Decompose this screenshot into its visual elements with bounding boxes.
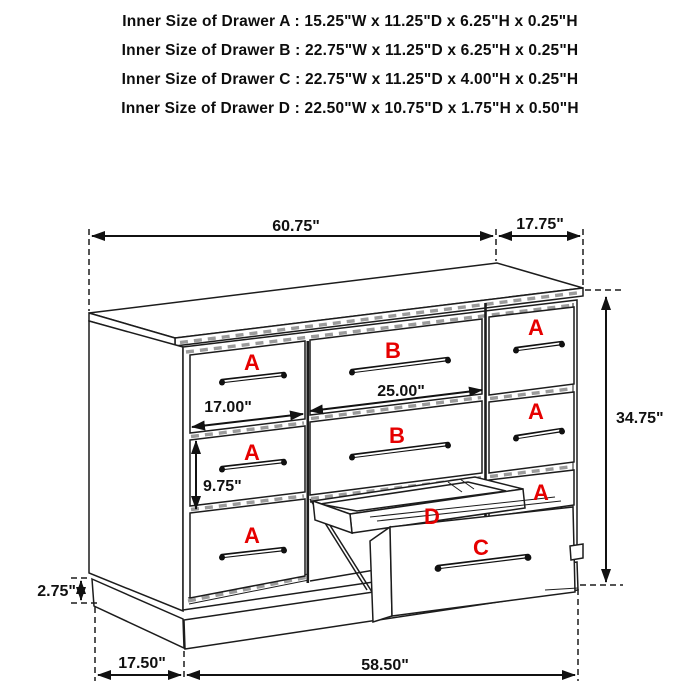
drawer-label-b-1: B bbox=[385, 338, 401, 363]
dresser-spec-sheet: Inner Size of Drawer A : 15.25"W x 11.25… bbox=[0, 0, 700, 700]
drawer-label-a-right-3: A bbox=[533, 480, 549, 505]
dim-side-depth: 17.75" bbox=[516, 216, 564, 233]
drawer-label-c: C bbox=[473, 535, 489, 560]
dim-drawer-a-height: 9.75" bbox=[203, 478, 242, 495]
dim-overall-width: 60.75" bbox=[272, 218, 320, 235]
drawer-label-a-left-2: A bbox=[244, 440, 260, 465]
drawer-label-a-right-2: A bbox=[528, 399, 544, 424]
dim-overall-height: 34.75" bbox=[616, 410, 664, 427]
dim-drawer-b-width: 25.00" bbox=[377, 383, 425, 400]
dim-base-width: 58.50" bbox=[361, 657, 409, 674]
dim-base-height: 2.75" bbox=[37, 583, 76, 600]
dim-base-side: 17.50" bbox=[118, 655, 166, 672]
drawer-label-d: D bbox=[424, 504, 440, 529]
side-panel-left bbox=[89, 321, 183, 611]
drawer-label-a-right-1: A bbox=[528, 315, 544, 340]
dim-drawer-a-width: 17.00" bbox=[204, 399, 252, 416]
drawer-label-b-2: B bbox=[389, 423, 405, 448]
drawer-label-a-left-1: A bbox=[244, 350, 260, 375]
dresser-dimension-diagram: A A A B B A A A D C bbox=[0, 0, 700, 700]
right-foot bbox=[570, 544, 583, 560]
drawer-label-a-left-3: A bbox=[244, 523, 260, 548]
dresser-drawing: A A A B B A A A D C bbox=[89, 263, 583, 649]
